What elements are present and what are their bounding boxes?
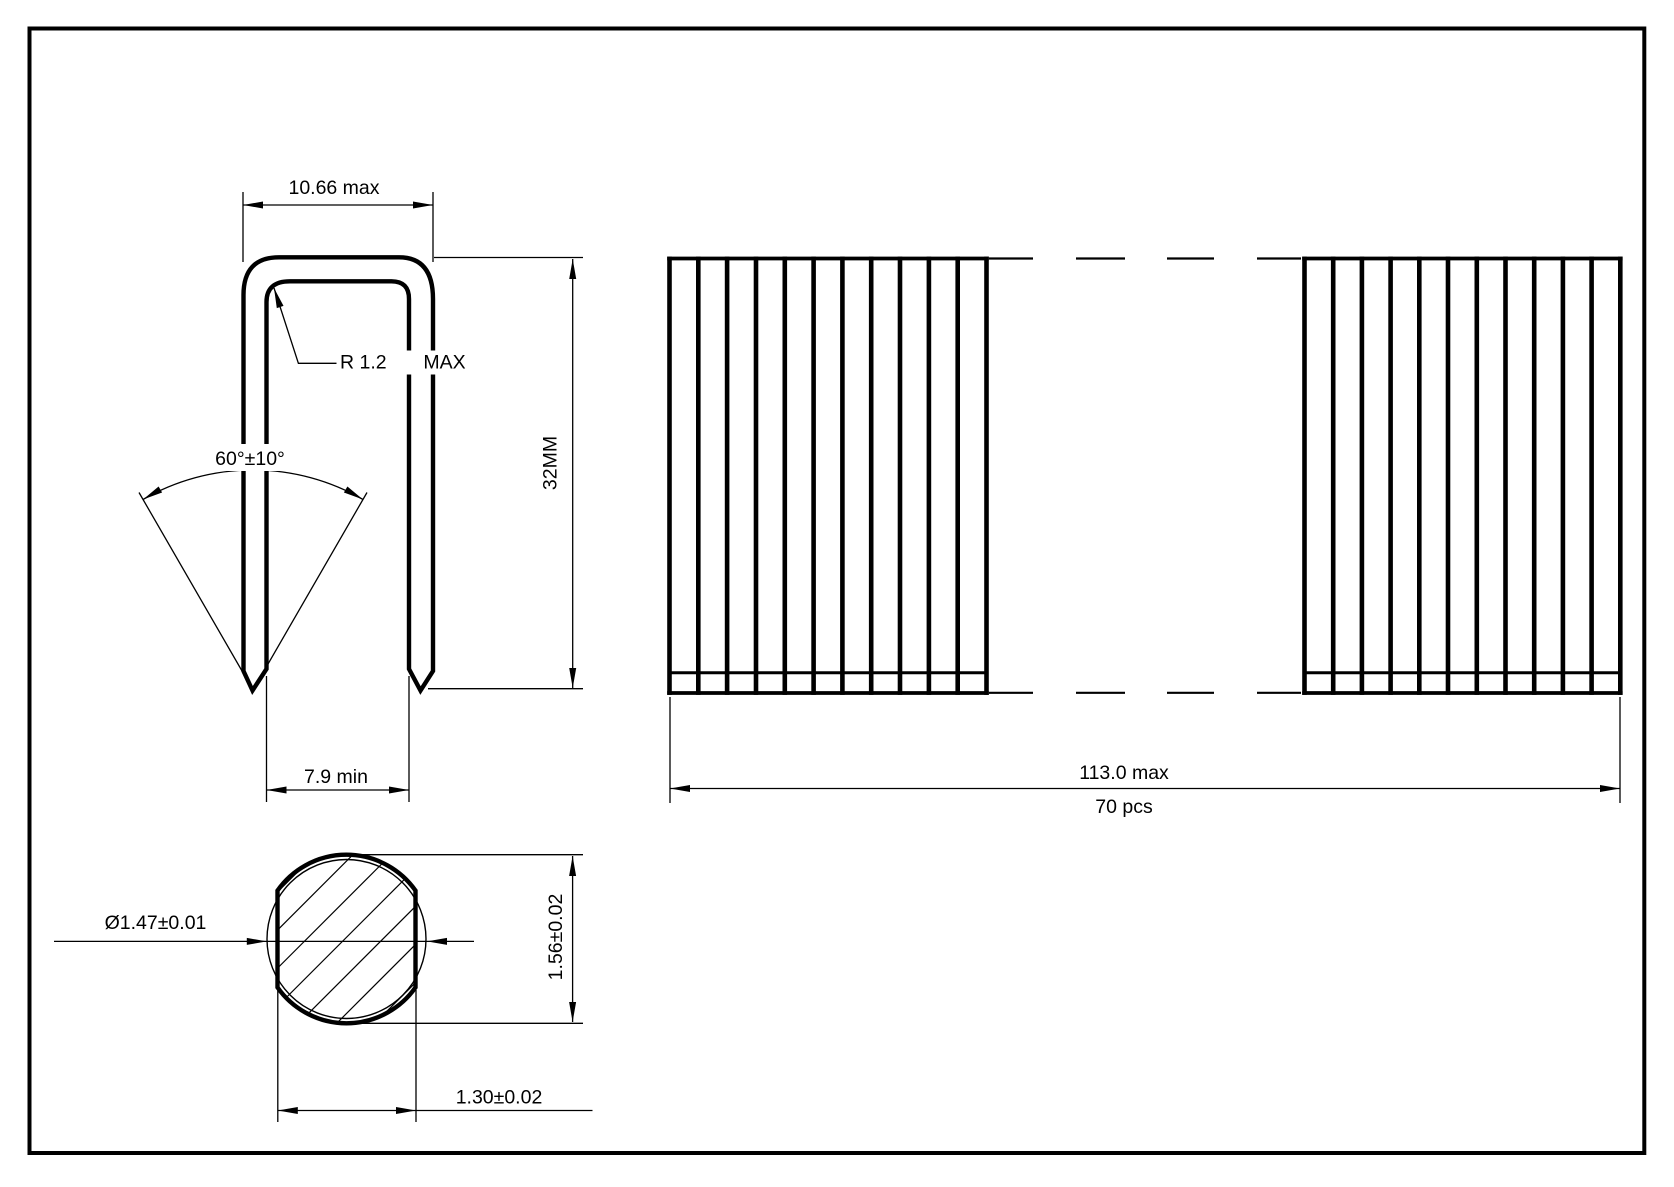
svg-text:60°±10°: 60°±10° [215,448,285,470]
svg-text:70 pcs: 70 pcs [1095,796,1153,818]
svg-text:MAX: MAX [423,352,465,374]
svg-text:1.30±0.02: 1.30±0.02 [456,1086,543,1108]
svg-text:7.9 min: 7.9 min [304,766,368,788]
svg-text:113.0 max: 113.0 max [1079,762,1169,784]
svg-text:1.56±0.02: 1.56±0.02 [545,894,567,981]
svg-text:R 1.2: R 1.2 [340,352,387,374]
svg-text:32MM: 32MM [540,436,562,490]
svg-text:Ø1.47±0.01: Ø1.47±0.01 [105,912,207,934]
svg-text:10.66 max: 10.66 max [288,177,379,199]
